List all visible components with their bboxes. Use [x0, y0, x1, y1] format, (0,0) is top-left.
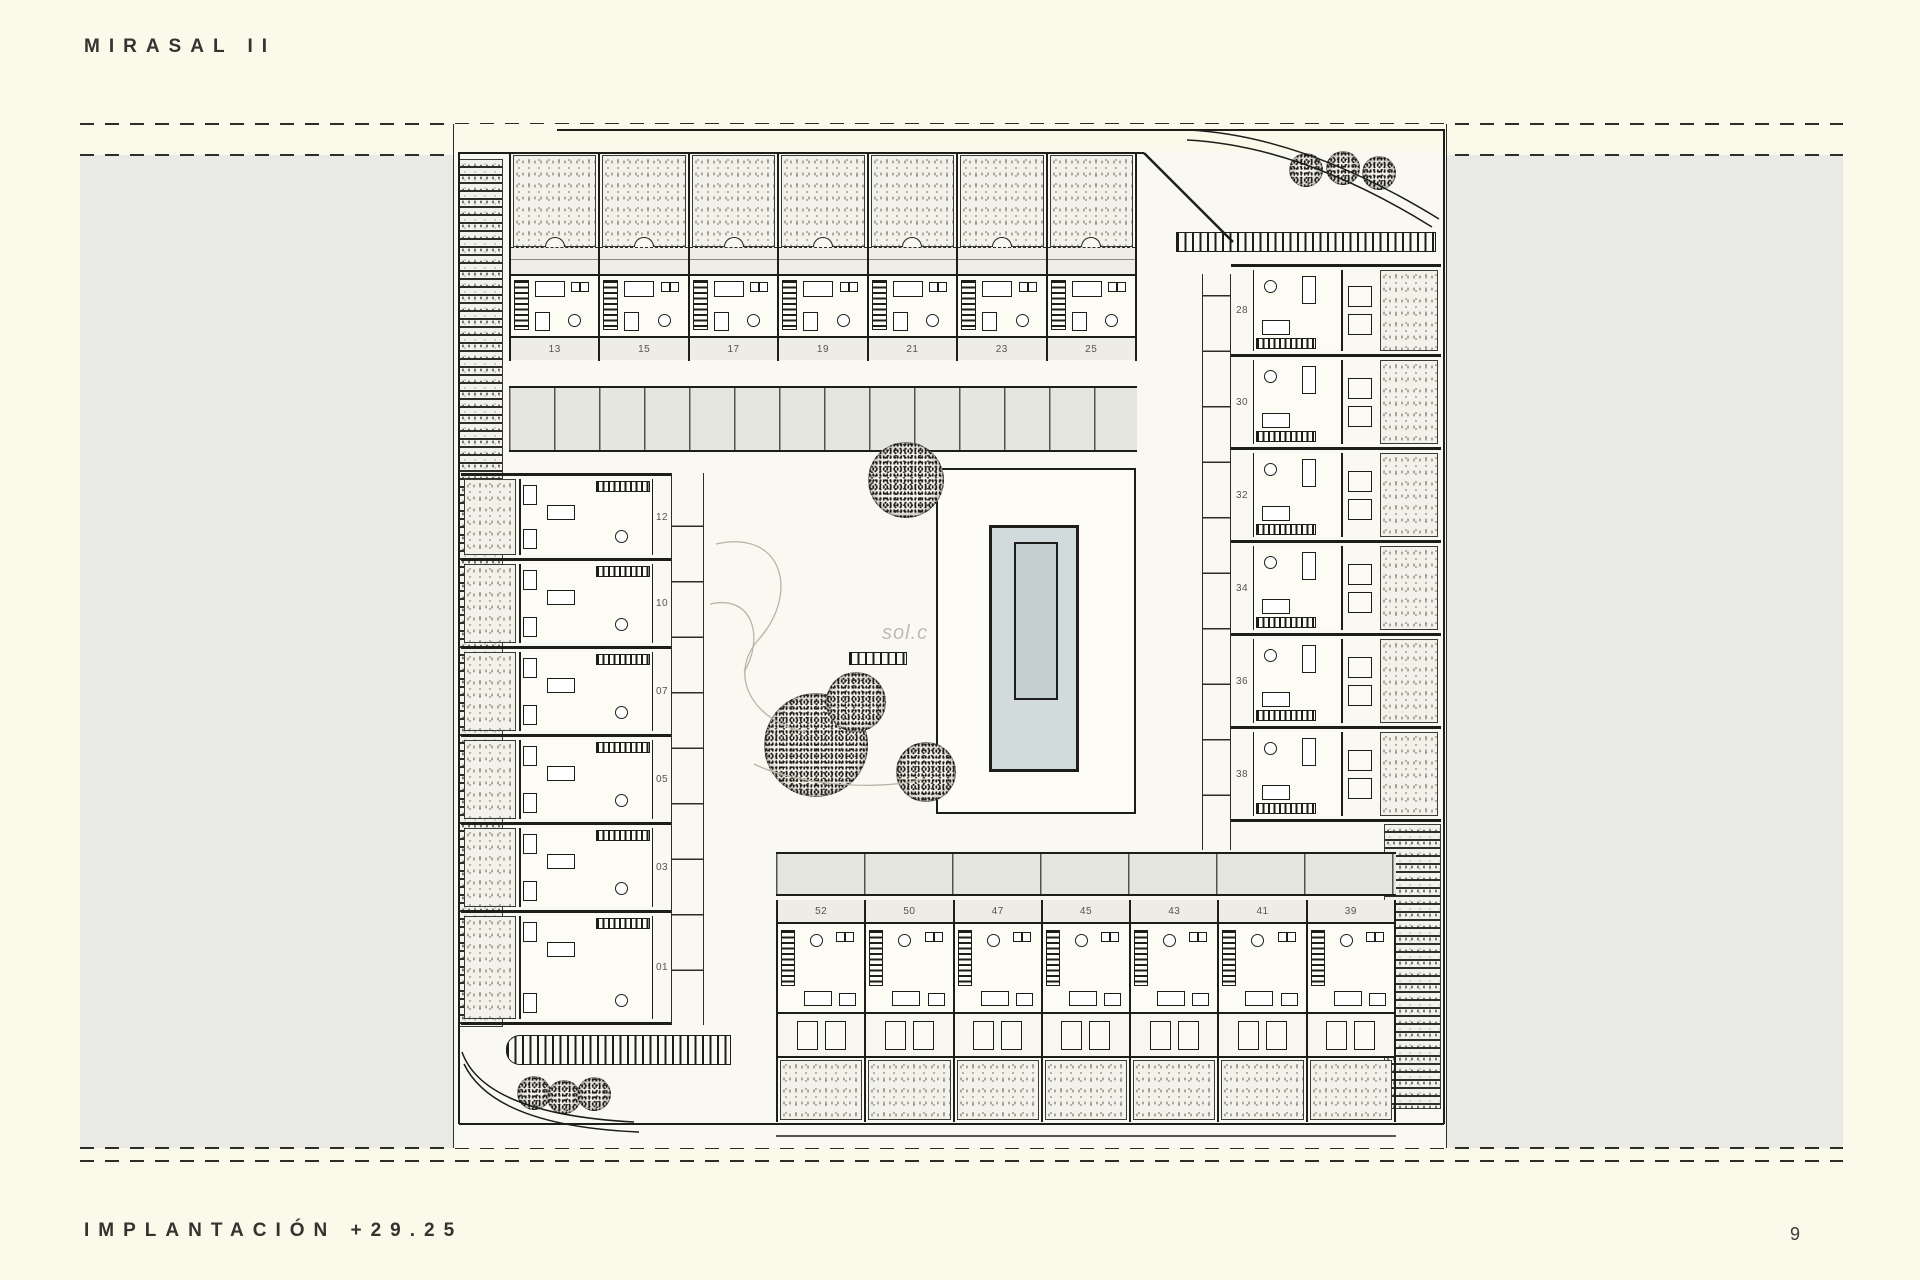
- unit-number-cell: 52: [778, 900, 864, 924]
- bedroom: [1343, 639, 1377, 723]
- unit-number-cell: 12: [653, 476, 671, 558]
- unit-25: 25: [1046, 153, 1137, 361]
- shower-icon: [1264, 463, 1277, 476]
- unit-number: 23: [996, 344, 1008, 355]
- furniture: [1262, 599, 1290, 614]
- wc-icon: [571, 282, 589, 292]
- watermark: sol.c: [882, 622, 928, 645]
- window-icon: [523, 834, 537, 854]
- furniture: [928, 993, 945, 1006]
- unit-number: 03: [656, 862, 668, 873]
- furniture: [547, 766, 575, 781]
- wc-icon: [840, 282, 858, 292]
- wc-icon: [1366, 932, 1384, 942]
- furniture: [547, 590, 575, 605]
- unit-garden: [871, 155, 954, 247]
- unit-terrace: [779, 247, 866, 276]
- furniture: [714, 312, 729, 331]
- unit-number-cell: 45: [1043, 900, 1129, 924]
- unit-43: 43: [1129, 900, 1217, 1122]
- unit-05: 05: [461, 737, 671, 825]
- unit-garden: [868, 1060, 950, 1120]
- stairs: [1256, 710, 1316, 721]
- window-icon: [523, 617, 537, 637]
- shower-icon: [615, 882, 628, 895]
- furniture: [1262, 413, 1290, 428]
- unit-garden: [1380, 270, 1438, 351]
- unit-52: 52: [776, 900, 864, 1122]
- unit-interior: [600, 276, 687, 336]
- unit-number-cell: 43: [1131, 900, 1217, 924]
- shower-icon: [1163, 934, 1176, 947]
- bath-wall: [1302, 276, 1316, 304]
- unit-number-cell: 47: [955, 900, 1041, 924]
- stairs: [961, 280, 976, 330]
- unit-garden: [781, 155, 864, 247]
- wc-icon: [1189, 932, 1207, 942]
- bedroom: [1343, 732, 1377, 816]
- furniture: [1157, 991, 1185, 1006]
- furniture: [1262, 320, 1290, 335]
- unit-number-cell: 36: [1231, 636, 1253, 726]
- shower-icon: [568, 314, 581, 327]
- bed: [1348, 685, 1372, 706]
- bed: [1354, 1021, 1375, 1050]
- unit-garden: [960, 155, 1043, 247]
- unit-number-cell: 05: [653, 737, 671, 822]
- unit-number-cell: 41: [1219, 900, 1305, 924]
- unit-garden: [1310, 1060, 1392, 1120]
- unit-garden: [780, 1060, 862, 1120]
- stairs: [1311, 930, 1325, 986]
- unit-garden: [464, 828, 516, 907]
- stairs: [1256, 803, 1316, 814]
- furniture: [981, 991, 1009, 1006]
- unit-number: 41: [1256, 906, 1268, 917]
- unit-interior: [519, 916, 653, 1019]
- unit-15: 15: [598, 153, 687, 361]
- shower-icon: [1251, 934, 1264, 947]
- furniture: [535, 312, 550, 331]
- wc-icon: [836, 932, 854, 942]
- unit-garden: [1380, 546, 1438, 630]
- unit-number: 19: [817, 344, 829, 355]
- shower-icon: [615, 530, 628, 543]
- bed: [1089, 1021, 1110, 1050]
- unit-number: 32: [1236, 490, 1248, 501]
- unit-garden: [1380, 732, 1438, 816]
- shower-icon: [615, 706, 628, 719]
- shower-icon: [1264, 280, 1277, 293]
- furniture: [714, 281, 744, 297]
- bed: [825, 1021, 846, 1050]
- unit-interior: [1219, 924, 1305, 1014]
- unit-10: 10: [461, 561, 671, 649]
- unit-interior: [1048, 276, 1135, 336]
- unit-number: 30: [1236, 397, 1248, 408]
- unit-17: 17: [688, 153, 777, 361]
- unit-03: 03: [461, 825, 671, 913]
- wc-icon: [1278, 932, 1296, 942]
- stairs: [1051, 280, 1066, 330]
- unit-number-cell: 03: [653, 825, 671, 910]
- unit-interior: [1308, 924, 1394, 1014]
- bedroom: [1343, 360, 1377, 444]
- furniture: [982, 312, 997, 331]
- door-arc-icon: [724, 237, 744, 247]
- bedroom: [1343, 270, 1377, 351]
- unit-47: 47: [953, 900, 1041, 1122]
- unit-number-cell: 39: [1308, 900, 1394, 924]
- bedroom: [778, 1014, 864, 1058]
- unit-number-cell: 15: [600, 336, 687, 360]
- shower-icon: [1264, 649, 1277, 662]
- stairs: [1256, 617, 1316, 628]
- bed: [1348, 406, 1372, 427]
- unit-number: 15: [638, 344, 650, 355]
- furniture: [1281, 993, 1298, 1006]
- unit-number-cell: 17: [690, 336, 777, 360]
- unit-garden: [602, 155, 685, 247]
- unit-garden: [464, 564, 516, 643]
- unit-interior: [519, 828, 653, 907]
- furniture: [803, 312, 818, 331]
- unit-19: 19: [777, 153, 866, 361]
- shower-icon: [1016, 314, 1029, 327]
- unit-number: 50: [903, 906, 915, 917]
- door-arc-icon: [1081, 237, 1101, 247]
- unit-number-cell: 34: [1231, 543, 1253, 633]
- unit-terrace: [869, 247, 956, 276]
- unit-number-cell: 10: [653, 561, 671, 646]
- bed: [1348, 750, 1372, 771]
- unit-number: 47: [992, 906, 1004, 917]
- unit-interior: [866, 924, 952, 1014]
- stairs: [1256, 524, 1316, 535]
- furniture: [804, 991, 832, 1006]
- bed: [1348, 564, 1372, 585]
- bed: [973, 1021, 994, 1050]
- unit-50: 50: [864, 900, 952, 1122]
- wc-icon: [1019, 282, 1037, 292]
- shower-icon: [987, 934, 1000, 947]
- left-column-units: 121007050301: [461, 473, 671, 1025]
- plan-caption: IMPLANTACIÓN +29.25: [84, 1220, 463, 1242]
- unit-interior: [1253, 732, 1343, 816]
- unit-terrace: [511, 247, 598, 276]
- unit-number: 01: [656, 962, 668, 973]
- unit-garden: [957, 1060, 1039, 1120]
- shower-icon: [1340, 934, 1353, 947]
- bed: [1238, 1021, 1259, 1050]
- stairs: [1222, 930, 1236, 986]
- unit-interior: [1253, 453, 1343, 537]
- stairs: [781, 930, 795, 986]
- unit-number: 12: [656, 512, 668, 523]
- bed: [885, 1021, 906, 1050]
- page-number: 9: [1790, 1224, 1800, 1245]
- window-icon: [523, 746, 537, 766]
- unit-garden: [1133, 1060, 1215, 1120]
- unit-interior: [1253, 546, 1343, 630]
- furniture: [547, 678, 575, 693]
- furniture: [547, 854, 575, 869]
- unit-number: 17: [727, 344, 739, 355]
- unit-number-cell: 19: [779, 336, 866, 360]
- unit-interior: [1253, 270, 1343, 351]
- unit-interior: [778, 924, 864, 1014]
- bedroom: [1343, 453, 1377, 537]
- shower-icon: [810, 934, 823, 947]
- bed: [1348, 471, 1372, 492]
- site-plan: 13151719212325 283032343638 121007050301…: [453, 124, 1447, 1148]
- unit-terrace: [958, 247, 1045, 276]
- unit-garden: [464, 740, 516, 819]
- drawing-title: MIRASAL II: [84, 36, 276, 58]
- unit-garden: [464, 479, 516, 555]
- furniture: [893, 312, 908, 331]
- furniture: [1192, 993, 1209, 1006]
- unit-garden: [692, 155, 775, 247]
- bed: [1178, 1021, 1199, 1050]
- furniture: [839, 993, 856, 1006]
- furniture: [1262, 692, 1290, 707]
- unit-number-cell: 07: [653, 649, 671, 734]
- furniture: [624, 281, 654, 297]
- door-arc-icon: [813, 237, 833, 247]
- shower-icon: [1105, 314, 1118, 327]
- unit-garden: [1050, 155, 1133, 247]
- window-icon: [523, 993, 537, 1013]
- stairs: [596, 918, 650, 929]
- drawing-sheet: { "page": { "title": "MIRASAL II", "foot…: [0, 0, 1920, 1280]
- bedroom: [866, 1014, 952, 1058]
- unit-number: 36: [1236, 676, 1248, 687]
- unit-number-cell: 28: [1231, 267, 1253, 354]
- bed: [797, 1021, 818, 1050]
- bed: [1266, 1021, 1287, 1050]
- bed: [1150, 1021, 1171, 1050]
- bed: [1348, 499, 1372, 520]
- unit-number: 38: [1236, 769, 1248, 780]
- wc-icon: [1013, 932, 1031, 942]
- stairs: [596, 654, 650, 665]
- furniture: [893, 281, 923, 297]
- shower-icon: [1075, 934, 1088, 947]
- shower-icon: [615, 794, 628, 807]
- shower-icon: [615, 994, 628, 1007]
- unit-number-cell: 50: [866, 900, 952, 924]
- unit-number: 45: [1080, 906, 1092, 917]
- unit-number: 43: [1168, 906, 1180, 917]
- bed: [1348, 314, 1372, 335]
- unit-07: 07: [461, 649, 671, 737]
- unit-interior: [958, 276, 1045, 336]
- top-row-units: 13151719212325: [509, 153, 1137, 361]
- unit-garden: [1045, 1060, 1127, 1120]
- door-arc-icon: [545, 237, 565, 247]
- bath-wall: [1302, 552, 1316, 580]
- unit-number: 07: [656, 686, 668, 697]
- stairs: [596, 566, 650, 577]
- unit-36: 36: [1231, 636, 1441, 729]
- unit-terrace: [1048, 247, 1135, 276]
- furniture: [1104, 993, 1121, 1006]
- unit-number: 25: [1085, 344, 1097, 355]
- furniture: [1072, 281, 1102, 297]
- bed: [1348, 378, 1372, 399]
- furniture: [547, 942, 575, 957]
- wc-icon: [750, 282, 768, 292]
- unit-number: 52: [815, 906, 827, 917]
- furniture: [1334, 991, 1362, 1006]
- unit-23: 23: [956, 153, 1045, 361]
- bath-wall: [1302, 738, 1316, 766]
- stairs: [1046, 930, 1060, 986]
- bedroom: [1219, 1014, 1305, 1058]
- unit-garden: [513, 155, 596, 247]
- furniture: [1262, 506, 1290, 521]
- window-icon: [523, 529, 537, 549]
- furniture: [547, 505, 575, 520]
- furniture: [982, 281, 1012, 297]
- window-icon: [523, 485, 537, 505]
- unit-garden: [464, 652, 516, 731]
- unit-30: 30: [1231, 357, 1441, 450]
- window-icon: [523, 570, 537, 590]
- unit-garden: [1380, 639, 1438, 723]
- unit-interior: [779, 276, 866, 336]
- stairs: [603, 280, 618, 330]
- unit-number-cell: 23: [958, 336, 1045, 360]
- shower-icon: [898, 934, 911, 947]
- unit-interior: [1131, 924, 1217, 1014]
- furniture: [1262, 785, 1290, 800]
- unit-number-cell: 01: [653, 913, 671, 1022]
- wc-icon: [1108, 282, 1126, 292]
- window-icon: [523, 922, 537, 942]
- unit-45: 45: [1041, 900, 1129, 1122]
- furniture: [803, 281, 833, 297]
- shower-icon: [615, 618, 628, 631]
- bed: [1348, 778, 1372, 799]
- stairs: [958, 930, 972, 986]
- stairs: [782, 280, 797, 330]
- unit-interior: [1253, 360, 1343, 444]
- stairs: [1256, 431, 1316, 442]
- unit-number: 21: [906, 344, 918, 355]
- unit-21: 21: [867, 153, 956, 361]
- stairs: [869, 930, 883, 986]
- bedroom: [1043, 1014, 1129, 1058]
- stairs: [596, 481, 650, 492]
- bedroom: [955, 1014, 1041, 1058]
- stairs: [1256, 338, 1316, 349]
- unit-38: 38: [1231, 729, 1441, 822]
- unit-interior: [519, 740, 653, 819]
- door-arc-icon: [992, 237, 1012, 247]
- unit-garden: [1380, 360, 1438, 444]
- unit-01: 01: [461, 913, 671, 1025]
- furniture: [1072, 312, 1087, 331]
- bath-wall: [1302, 459, 1316, 487]
- unit-41: 41: [1217, 900, 1305, 1122]
- unit-28: 28: [1231, 264, 1441, 357]
- bottom-row-units: 52504745434139: [776, 900, 1396, 1122]
- bath-wall: [1302, 645, 1316, 673]
- shower-icon: [926, 314, 939, 327]
- window-icon: [523, 881, 537, 901]
- wc-icon: [1101, 932, 1119, 942]
- unit-39: 39: [1306, 900, 1396, 1122]
- shower-icon: [1264, 556, 1277, 569]
- bedroom: [1343, 546, 1377, 630]
- furniture: [535, 281, 565, 297]
- furniture: [624, 312, 639, 331]
- unit-garden: [1221, 1060, 1303, 1120]
- unit-interior: [955, 924, 1041, 1014]
- unit-interior: [519, 564, 653, 643]
- wc-icon: [925, 932, 943, 942]
- unit-interior: [1043, 924, 1129, 1014]
- shower-icon: [658, 314, 671, 327]
- stairs: [872, 280, 887, 330]
- unit-interior: [511, 276, 598, 336]
- furniture: [1069, 991, 1097, 1006]
- bed: [1061, 1021, 1082, 1050]
- unit-interior: [519, 652, 653, 731]
- bed: [1348, 286, 1372, 307]
- unit-terrace: [600, 247, 687, 276]
- window-icon: [523, 658, 537, 678]
- door-arc-icon: [902, 237, 922, 247]
- unit-number: 10: [656, 598, 668, 609]
- unit-number: 34: [1236, 583, 1248, 594]
- unit-13: 13: [509, 153, 598, 361]
- unit-garden: [464, 916, 516, 1019]
- unit-number-cell: 32: [1231, 450, 1253, 540]
- unit-interior: [1253, 639, 1343, 723]
- bedroom: [1308, 1014, 1394, 1058]
- stairs: [596, 830, 650, 841]
- unit-12: 12: [461, 473, 671, 561]
- unit-number-cell: 30: [1231, 357, 1253, 447]
- unit-interior: [519, 479, 653, 555]
- furniture: [1016, 993, 1033, 1006]
- bed: [1348, 592, 1372, 613]
- unit-interior: [869, 276, 956, 336]
- bed: [1326, 1021, 1347, 1050]
- unit-number: 13: [549, 344, 561, 355]
- unit-number-cell: 38: [1231, 729, 1253, 819]
- unit-terrace: [690, 247, 777, 276]
- unit-interior: [690, 276, 777, 336]
- bed: [1348, 657, 1372, 678]
- unit-number: 39: [1345, 906, 1357, 917]
- unit-34: 34: [1231, 543, 1441, 636]
- furniture: [1369, 993, 1386, 1006]
- right-column-units: 283032343638: [1231, 264, 1441, 822]
- furniture: [1245, 991, 1273, 1006]
- bed: [913, 1021, 934, 1050]
- unit-number-cell: 13: [511, 336, 598, 360]
- wc-icon: [661, 282, 679, 292]
- unit-number: 05: [656, 774, 668, 785]
- wc-icon: [929, 282, 947, 292]
- stairs: [1134, 930, 1148, 986]
- unit-number-cell: 25: [1048, 336, 1135, 360]
- shower-icon: [747, 314, 760, 327]
